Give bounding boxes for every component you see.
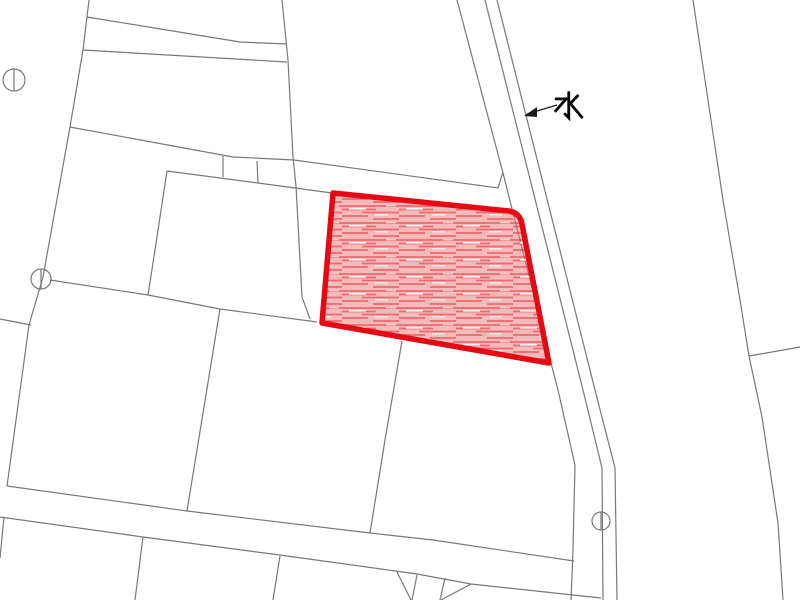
road-upper-strip-bottom: [83, 50, 287, 62]
boundary-vertical-1: [148, 171, 167, 295]
road-lower-top: [7, 486, 574, 561]
road-middle-strip-bottom: [167, 171, 332, 193]
boundary-horizontal-mid: [50, 280, 317, 322]
boundary-below-parcel: [370, 341, 402, 533]
strip-notch-right: [257, 161, 258, 183]
boundary-below-road-1: [135, 537, 143, 600]
road-middle-strip-top: [70, 127, 503, 188]
small-lot-b-diagonal: [441, 584, 471, 600]
small-lot-a-diagonal: [397, 572, 411, 600]
boundary-left-long: [7, 0, 89, 486]
boundary-below-road-2: [273, 556, 280, 600]
highlighted-parcel: [322, 193, 549, 363]
boundary-right-branch: [749, 347, 800, 356]
road-upper-strip-top: [87, 17, 287, 44]
boundary-left-bottom-stub: [0, 517, 4, 558]
water-label-arrow: [524, 105, 557, 117]
cadastral-map-viewport: 水: [0, 0, 800, 600]
small-lot-b-side: [440, 578, 445, 600]
small-lot-a-side: [412, 575, 417, 600]
boundary-right-long: [693, 0, 783, 600]
arrow-head: [524, 107, 537, 117]
survey-marker-waterway: [592, 512, 610, 530]
water-label-glyph: [556, 93, 582, 118]
cadastral-map: [0, 0, 800, 600]
survey-marker-mid-left: [31, 269, 51, 289]
road-lower-bottom: [0, 517, 601, 598]
boundary-left-edge-stub: [0, 319, 31, 325]
survey-marker-top-left: [3, 69, 25, 91]
boundary-diagonal-mid: [187, 309, 220, 511]
